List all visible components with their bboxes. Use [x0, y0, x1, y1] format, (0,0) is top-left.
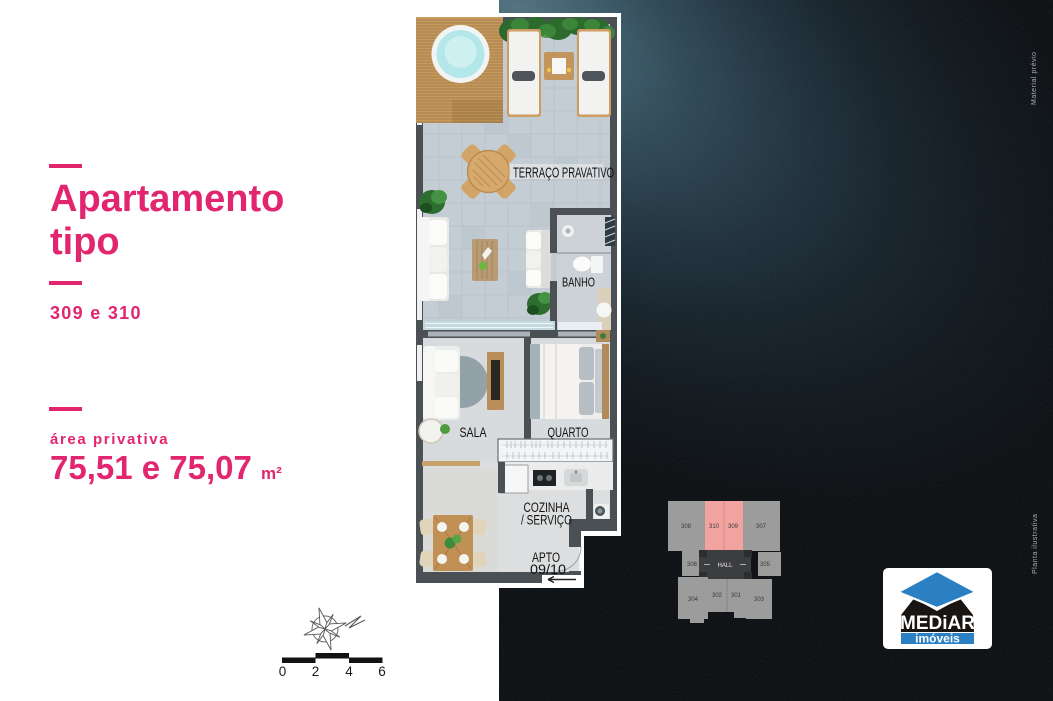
svg-text:0: 0 — [279, 664, 287, 679]
svg-text:4: 4 — [345, 664, 353, 679]
svg-text:TERRAÇO PRAVATIVO: TERRAÇO PRAVATIVO — [513, 165, 614, 182]
svg-text:imóveis: imóveis — [915, 632, 960, 646]
svg-text:307: 307 — [756, 524, 767, 530]
svg-text:2: 2 — [312, 664, 320, 679]
svg-text:309: 309 — [728, 524, 739, 530]
svg-text:SALA: SALA — [460, 424, 487, 440]
svg-text:302: 302 — [712, 593, 723, 599]
svg-text:308: 308 — [681, 524, 692, 530]
svg-text:BANHO: BANHO — [562, 275, 595, 290]
svg-text:09/10: 09/10 — [530, 562, 566, 577]
svg-text:310: 310 — [709, 524, 720, 530]
svg-text:306: 306 — [687, 562, 698, 568]
svg-text:QUARTO: QUARTO — [548, 424, 589, 440]
svg-text:6: 6 — [378, 664, 386, 679]
svg-text:305: 305 — [760, 562, 771, 568]
svg-text:/ SERVIÇO: / SERVIÇO — [521, 513, 572, 528]
svg-text:304: 304 — [688, 597, 699, 603]
svg-text:303: 303 — [754, 597, 765, 603]
svg-text:HALL: HALL — [717, 563, 733, 569]
svg-text:301: 301 — [731, 593, 742, 599]
